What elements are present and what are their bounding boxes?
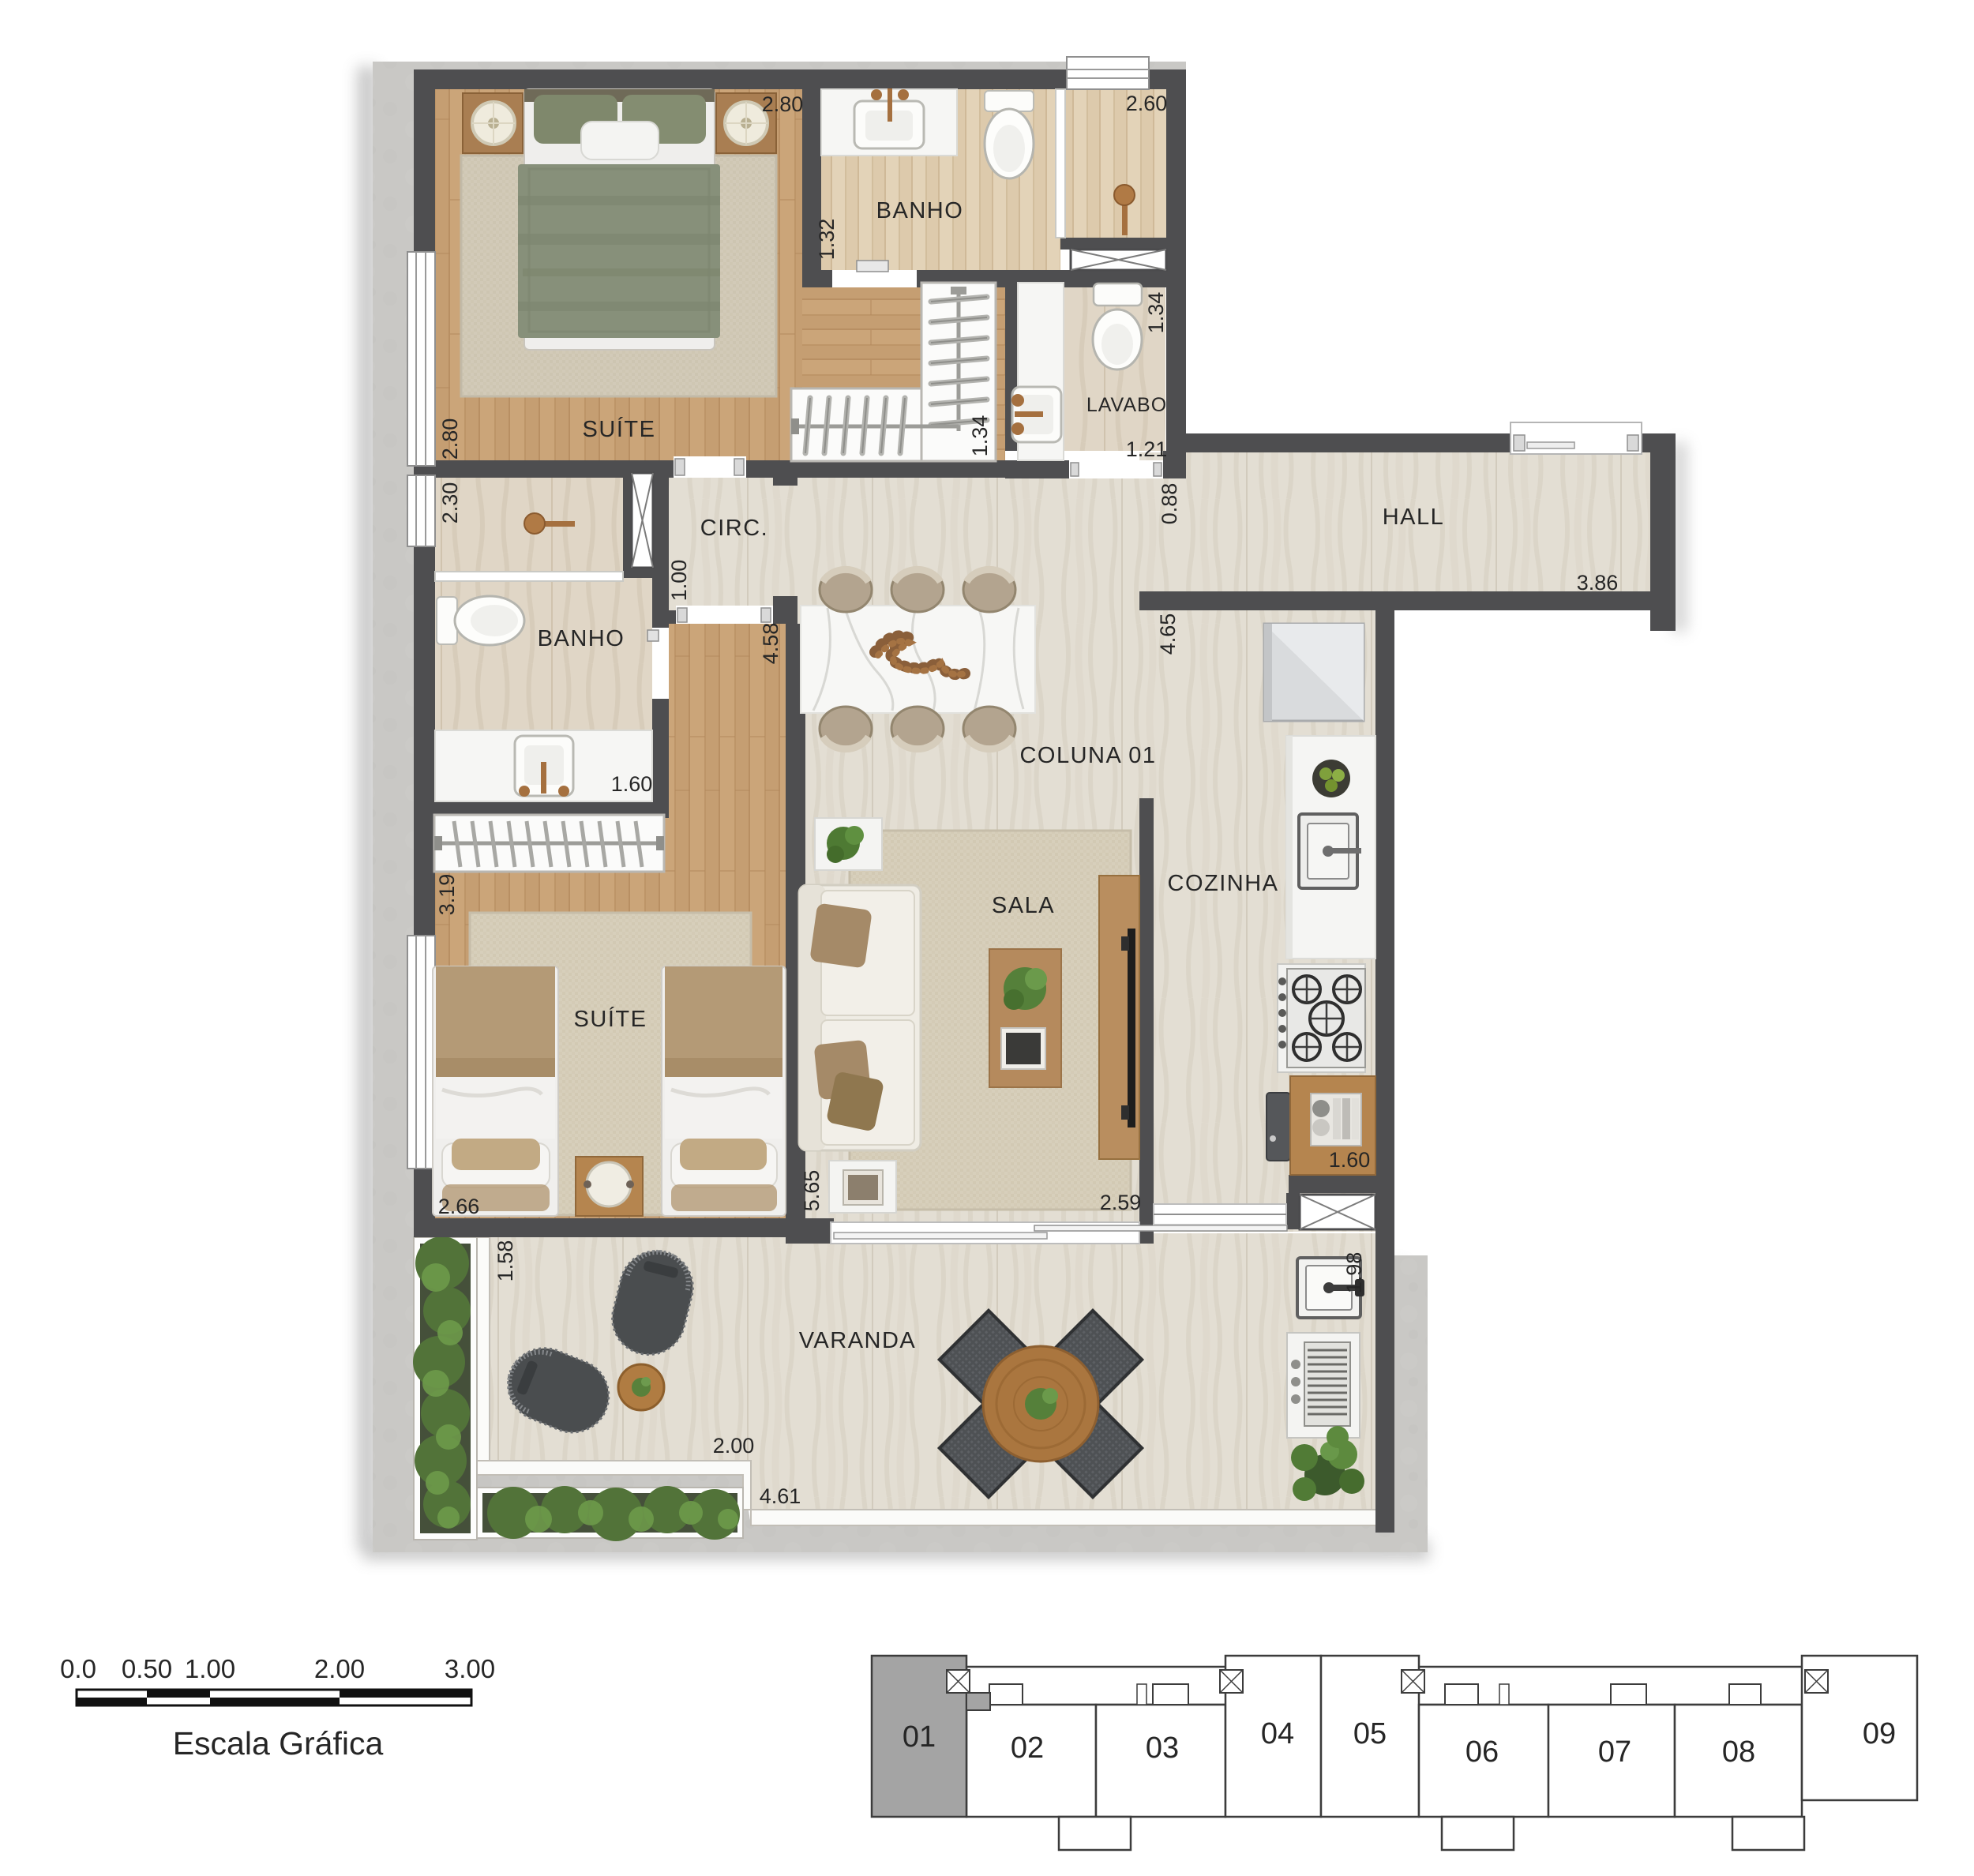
svg-text:0.50: 0.50 (122, 1654, 172, 1683)
svg-text:0.0: 0.0 (60, 1654, 96, 1683)
svg-text:05: 05 (1353, 1717, 1387, 1750)
svg-text:4.65: 4.65 (1156, 613, 1180, 655)
svg-text:1.32: 1.32 (815, 219, 839, 261)
svg-text:1.00: 1.00 (185, 1654, 235, 1683)
svg-text:SUÍTE: SUÍTE (583, 416, 656, 442)
svg-text:1.21: 1.21 (1126, 437, 1168, 461)
svg-text:CIRC.: CIRC. (700, 516, 768, 541)
svg-text:2.00: 2.00 (314, 1654, 365, 1683)
svg-text:3.00: 3.00 (445, 1654, 495, 1683)
svg-text:SUÍTE: SUÍTE (574, 1006, 647, 1032)
svg-text:08: 08 (1722, 1735, 1755, 1769)
svg-text:HALL: HALL (1383, 505, 1445, 530)
svg-text:2.80: 2.80 (762, 92, 804, 116)
svg-text:VARANDA: VARANDA (799, 1328, 917, 1353)
svg-text:06: 06 (1465, 1735, 1499, 1769)
svg-text:2.30: 2.30 (438, 482, 462, 524)
svg-text:2.80: 2.80 (438, 418, 462, 460)
svg-text:BANHO: BANHO (538, 626, 625, 651)
svg-text:0.88: 0.88 (1158, 483, 1181, 525)
svg-text:09: 09 (1863, 1717, 1896, 1750)
svg-text:04: 04 (1261, 1717, 1294, 1750)
svg-text:BANHO: BANHO (876, 198, 964, 223)
svg-text:07: 07 (1598, 1735, 1631, 1769)
svg-text:3.19: 3.19 (435, 874, 459, 916)
svg-text:4.61: 4.61 (760, 1484, 801, 1508)
svg-text:Escala Gráfica: Escala Gráfica (173, 1725, 384, 1762)
svg-text:2.66: 2.66 (438, 1195, 480, 1218)
svg-text:2.00: 2.00 (713, 1434, 755, 1458)
svg-text:2.60: 2.60 (1126, 92, 1168, 115)
svg-text:COZINHA: COZINHA (1168, 871, 1279, 896)
svg-text:COLUNA 01: COLUNA 01 (1019, 743, 1156, 768)
svg-text:3.86: 3.86 (1577, 571, 1619, 595)
svg-text:1.00: 1.00 (667, 560, 691, 602)
svg-text:1.34: 1.34 (968, 415, 992, 457)
svg-text:1.58: 1.58 (493, 1240, 517, 1282)
svg-text:1.34: 1.34 (1144, 292, 1168, 334)
svg-text:5.65: 5.65 (800, 1170, 824, 1212)
svg-text:1.98: 1.98 (1342, 1252, 1366, 1294)
svg-text:LAVABO: LAVABO (1086, 394, 1167, 416)
svg-text:1.60: 1.60 (611, 772, 653, 796)
svg-text:01: 01 (903, 1720, 936, 1754)
svg-text:02: 02 (1011, 1732, 1044, 1765)
svg-text:1.60: 1.60 (1329, 1148, 1371, 1172)
svg-text:SALA: SALA (992, 893, 1055, 918)
svg-text:4.58: 4.58 (759, 623, 782, 665)
svg-text:03: 03 (1146, 1732, 1179, 1765)
svg-text:2.59: 2.59 (1100, 1191, 1142, 1214)
